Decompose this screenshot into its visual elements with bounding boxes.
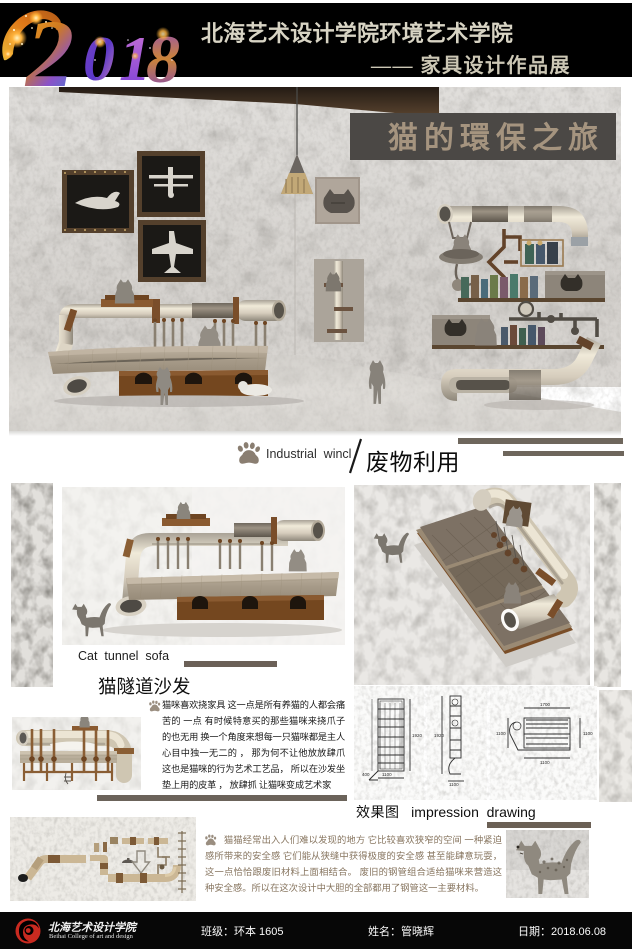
- svg-text:1100: 1100: [540, 760, 550, 765]
- svg-text:400: 400: [362, 772, 370, 777]
- svg-text:1100: 1100: [496, 731, 506, 736]
- svg-text:2: 2: [24, 0, 74, 92]
- svg-text:1700: 1700: [540, 702, 551, 707]
- svg-text:猫的環保之旅: 猫的環保之旅: [388, 121, 604, 155]
- svg-text:0: 0: [83, 23, 115, 92]
- svg-text:1100: 1100: [449, 782, 459, 787]
- svg-text:1920: 1920: [434, 733, 445, 738]
- svg-text:1100: 1100: [583, 731, 593, 736]
- svg-text:1920: 1920: [412, 733, 423, 738]
- svg-text:1100: 1100: [382, 772, 392, 777]
